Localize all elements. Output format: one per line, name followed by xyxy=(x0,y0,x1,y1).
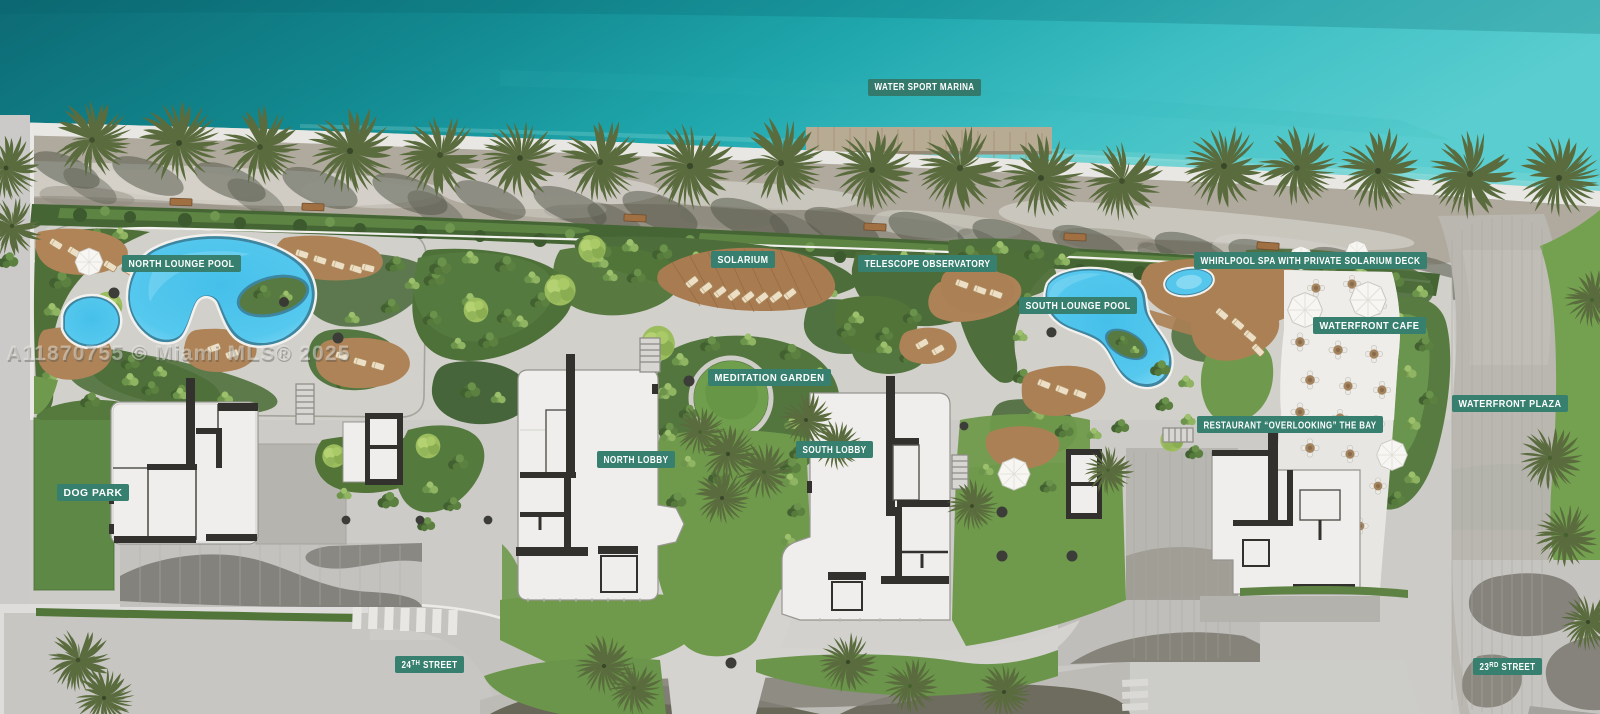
svg-text:23RD STREET: 23RD STREET xyxy=(1480,660,1536,673)
svg-text:NORTH LOUNGE POOL: NORTH LOUNGE POOL xyxy=(129,259,235,270)
svg-text:NORTH LOBBY: NORTH LOBBY xyxy=(604,455,669,466)
svg-text:WHIRLPOOL SPA WITH PRIVATE SOL: WHIRLPOOL SPA WITH PRIVATE SOLARIUM DECK xyxy=(1201,256,1421,267)
svg-text:24TH STREET: 24TH STREET xyxy=(402,658,458,671)
svg-text:WATER SPORT MARINA: WATER SPORT MARINA xyxy=(875,82,975,93)
svg-text:A11870755 © Miami MLS® 2025: A11870755 © Miami MLS® 2025 xyxy=(6,342,351,365)
svg-text:DOG PARK: DOG PARK xyxy=(64,488,123,499)
svg-text:TELESCOPE OBSERVATORY: TELESCOPE OBSERVATORY xyxy=(865,259,991,270)
svg-text:RESTAURANT “OVERLOOKING” THE B: RESTAURANT “OVERLOOKING” THE BAY xyxy=(1204,421,1377,432)
svg-text:WATERFRONT CAFE: WATERFRONT CAFE xyxy=(1320,321,1420,332)
svg-text:MEDITATION GARDEN: MEDITATION GARDEN xyxy=(715,373,825,384)
svg-text:WATERFRONT PLAZA: WATERFRONT PLAZA xyxy=(1459,399,1562,410)
svg-text:SOUTH LOUNGE POOL: SOUTH LOUNGE POOL xyxy=(1026,301,1131,312)
svg-text:SOLARIUM: SOLARIUM xyxy=(718,255,769,266)
svg-text:SOUTH LOBBY: SOUTH LOBBY xyxy=(803,445,867,456)
